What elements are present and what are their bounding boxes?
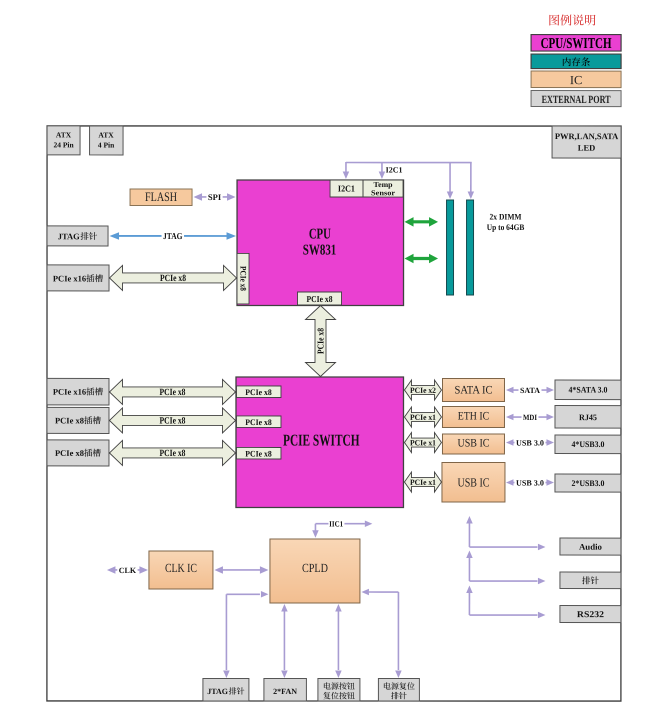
svg-text:PCIe x8: PCIe x8 <box>160 274 186 284</box>
svg-text:SATA: SATA <box>520 386 540 395</box>
svg-text:PCIE SWITCH: PCIE SWITCH <box>283 430 360 449</box>
svg-text:RS232: RS232 <box>577 609 605 619</box>
svg-text:I2C1: I2C1 <box>386 166 403 175</box>
svg-text:MDI: MDI <box>523 413 537 422</box>
svg-text:PCIe x8: PCIe x8 <box>245 449 272 459</box>
svg-text:PCIe x8: PCIe x8 <box>307 294 333 304</box>
svg-text:SATA IC: SATA IC <box>454 385 492 397</box>
svg-text:4 Pin: 4 Pin <box>98 140 115 149</box>
svg-text:JTAG: JTAG <box>207 687 228 696</box>
svg-text:24 Pin: 24 Pin <box>53 140 74 149</box>
svg-text:EXTERNAL PORT: EXTERNAL PORT <box>542 94 611 106</box>
svg-text:Audio: Audio <box>579 542 602 552</box>
svg-text:CPU/SWITCH: CPU/SWITCH <box>541 36 612 52</box>
svg-text:I2C1: I2C1 <box>338 184 355 194</box>
svg-text:JTAG: JTAG <box>163 231 183 241</box>
svg-text:USB 3.0: USB 3.0 <box>516 479 544 488</box>
svg-text:USB 3.0: USB 3.0 <box>516 439 544 448</box>
svg-text:ETH IC: ETH IC <box>458 411 490 423</box>
svg-text:2*USB3.0: 2*USB3.0 <box>571 478 604 488</box>
svg-text:PCIe x2: PCIe x2 <box>410 386 436 395</box>
svg-text:4*SATA 3.0: 4*SATA 3.0 <box>568 384 607 394</box>
svg-text:PCIe x1: PCIe x1 <box>410 478 436 487</box>
svg-text:FLASH: FLASH <box>145 189 177 204</box>
svg-text:PCIe x8: PCIe x8 <box>159 449 185 459</box>
svg-text:LED: LED <box>578 143 595 153</box>
svg-text:USB IC: USB IC <box>457 438 489 450</box>
svg-text:RJ45: RJ45 <box>579 412 597 422</box>
svg-text:PCIe x8: PCIe x8 <box>245 417 272 427</box>
svg-text:USB IC: USB IC <box>457 475 489 489</box>
svg-text:SPI: SPI <box>208 192 222 202</box>
svg-text:PCIe x1: PCIe x1 <box>410 413 436 422</box>
svg-text:ATX: ATX <box>98 130 114 139</box>
svg-text:CLK: CLK <box>119 566 137 575</box>
svg-text:CPU: CPU <box>309 226 331 242</box>
svg-text:PCIe x8: PCIe x8 <box>55 448 84 458</box>
svg-text:JTAG: JTAG <box>58 231 80 241</box>
svg-text:IIC1: IIC1 <box>329 520 343 529</box>
svg-text:CPLD: CPLD <box>302 561 328 575</box>
svg-text:PCIe x8: PCIe x8 <box>245 387 272 397</box>
svg-text:PCIe x16: PCIe x16 <box>53 387 86 397</box>
svg-text:PCIe x16: PCIe x16 <box>53 273 86 283</box>
svg-text:PCIe x8: PCIe x8 <box>55 415 84 425</box>
svg-text:2*FAN: 2*FAN <box>273 687 297 696</box>
svg-text:Up to 64GB: Up to 64GB <box>487 222 525 232</box>
svg-text:PCIe x8: PCIe x8 <box>316 328 326 354</box>
svg-text:SW831: SW831 <box>303 242 337 258</box>
svg-text:IC: IC <box>570 73 583 87</box>
svg-text:PCIe x8: PCIe x8 <box>159 388 185 398</box>
svg-text:PWR,LAN,SATA: PWR,LAN,SATA <box>555 131 619 141</box>
svg-text:PCIe x8: PCIe x8 <box>239 266 249 291</box>
svg-text:PCIe x1: PCIe x1 <box>410 438 436 447</box>
svg-text:2x DIMM: 2x DIMM <box>490 212 522 222</box>
svg-text:CLK IC: CLK IC <box>165 561 197 575</box>
svg-text:PCIe x8: PCIe x8 <box>159 417 185 427</box>
svg-text:4*USB3.0: 4*USB3.0 <box>571 439 604 449</box>
svg-text:Sensor: Sensor <box>371 188 396 197</box>
svg-text:ATX: ATX <box>56 130 72 139</box>
